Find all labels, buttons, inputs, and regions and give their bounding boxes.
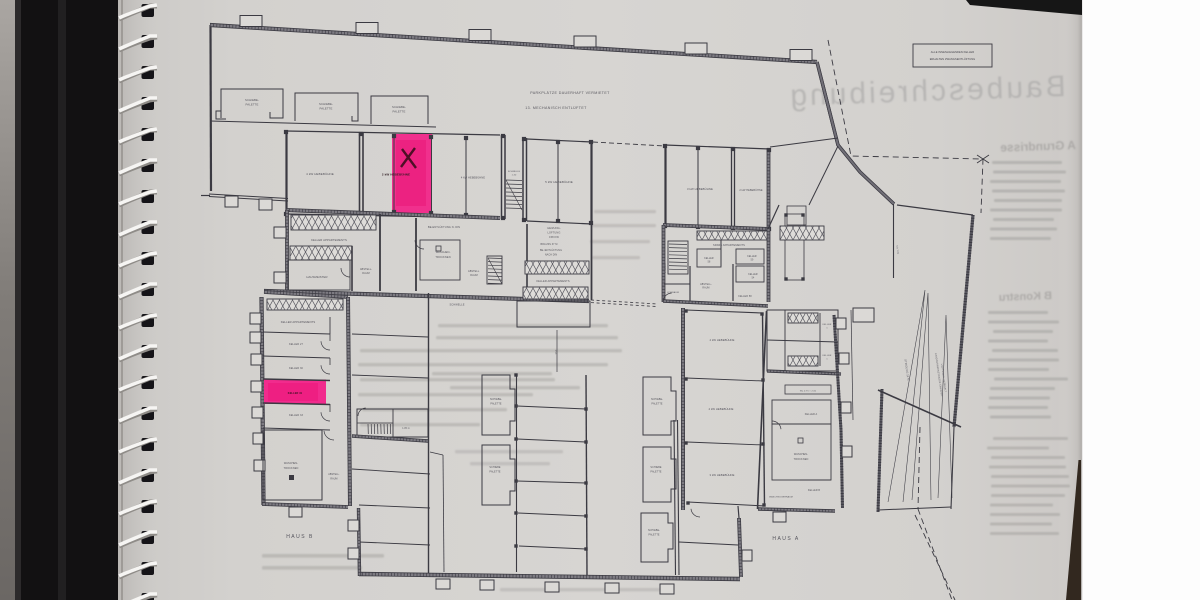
svg-text:1.30: 1.30	[512, 175, 517, 177]
svg-text:ABSTELL-: ABSTELL-	[360, 268, 372, 271]
svg-text:TROCKNEN: TROCKNEN	[435, 255, 450, 259]
svg-text:KELLER APPARTEMENTS: KELLER APPARTEMENTS	[311, 238, 347, 242]
svg-text:1.05×2.0: 1.05×2.0	[664, 263, 667, 273]
svg-text:ALLE INNENLIEGENDEN KELLER: ALLE INNENLIEGENDEN KELLER	[931, 50, 974, 54]
svg-text:WASCHEN-: WASCHEN-	[284, 462, 298, 465]
svg-text:SCHIEBE: SCHIEBE	[650, 466, 662, 469]
svg-text:3 kW HEBEBÜHNE: 3 kW HEBEBÜHNE	[710, 473, 735, 477]
svg-text:PALETTE: PALETTE	[393, 110, 406, 114]
svg-text:BE-/ENTLÜFTUNG: BE-/ENTLÜFTUNG	[540, 249, 562, 252]
svg-text:KELLER: KELLER	[704, 258, 714, 260]
svg-text:WASCHEN-: WASCHEN-	[794, 453, 808, 456]
svg-text:KELLER: KELLER	[748, 274, 758, 276]
svg-text:BRAUSS 37 M: BRAUSS 37 M	[541, 243, 558, 246]
svg-text:RAUM: RAUM	[702, 287, 709, 290]
svg-text:RAUM: RAUM	[362, 272, 369, 275]
svg-text:A Grundrisse: A Grundrisse	[1000, 138, 1076, 155]
svg-text:PALETTE: PALETTE	[648, 534, 659, 537]
svg-text:ABSTELL-: ABSTELL-	[700, 283, 712, 286]
svg-text:HAUS A: HAUS A	[772, 536, 799, 542]
svg-text:PALETTE: PALETTE	[650, 471, 661, 474]
svg-text:TROCKNEN: TROCKNEN	[284, 467, 299, 470]
svg-text:SCHWELLE: SCHWELLE	[449, 303, 464, 307]
svg-text:PARKPLÄTZE DAUERHAFT VERMIETET: PARKPLÄTZE DAUERHAFT VERMIETET	[530, 91, 610, 95]
svg-text:2 kW HEBEBÜHNE: 2 kW HEBEBÜHNE	[382, 172, 410, 177]
svg-text:SCHIEBE-: SCHIEBE-	[392, 105, 406, 109]
svg-text:KELLER 30: KELLER 30	[289, 367, 303, 370]
svg-text:SCHIEBE-: SCHIEBE-	[651, 398, 663, 401]
svg-text:LÜFTUNG: LÜFTUNG	[548, 231, 561, 235]
svg-text:SCHIEBE: SCHIEBE	[489, 466, 501, 469]
svg-text:WASCHKÜGERRAUM: WASCHKÜGERRAUM	[769, 496, 793, 499]
svg-text:4 kW HEBEBÜHNE: 4 kW HEBEBÜHNE	[461, 176, 485, 180]
svg-text:KELLER: KELLER	[747, 256, 757, 258]
svg-text:SCHIEBE-: SCHIEBE-	[245, 98, 259, 102]
svg-text:PALETTE: PALETTE	[489, 471, 500, 474]
svg-text:KELLER APPARTEMENTS: KELLER APPARTEMENTS	[536, 279, 570, 283]
svg-text:ABSTELL.: ABSTELL.	[468, 270, 480, 273]
svg-text:KELLER: KELLER	[823, 355, 832, 357]
svg-text:4 kW HEBEBÜHNE: 4 kW HEBEBÜHNE	[709, 407, 734, 411]
svg-text:SCHIEBE-: SCHIEBE-	[490, 398, 502, 401]
svg-text:BE-ENTLÜFTUNG N. DIN: BE-ENTLÜFTUNG N. DIN	[428, 225, 460, 229]
svg-text:KELLER 27: KELLER 27	[289, 343, 303, 346]
svg-text:SCHIEBE-: SCHIEBE-	[648, 529, 660, 532]
svg-text:PALETTE: PALETTE	[651, 403, 662, 406]
svg-text:RAUM: RAUM	[330, 478, 337, 481]
svg-text:B Konstru: B Konstru	[999, 290, 1053, 304]
svg-text:RAUM: RAUM	[470, 274, 477, 277]
svg-text:KELLER A: KELLER A	[805, 413, 818, 416]
svg-text:SPARE APPARTEMENTS: SPARE APPARTEMENTS	[713, 243, 745, 247]
svg-text:PALETTE: PALETTE	[490, 403, 501, 406]
svg-text:5 kW HEBEBÜHNE: 5 kW HEBEBÜHNE	[545, 180, 573, 184]
svg-text:3 kW HEBEBÜHNE: 3 kW HEBEBÜHNE	[687, 187, 713, 191]
svg-text:KELLER 58: KELLER 58	[738, 295, 752, 298]
svg-text:2 kW HEBEBÜHNE: 2 kW HEBEBÜHNE	[739, 189, 763, 192]
svg-text:158 KW: 158 KW	[549, 235, 559, 239]
svg-text:Wa 0.75 × 2.00: Wa 0.75 × 2.00	[800, 390, 817, 393]
svg-text:NACH DIN: NACH DIN	[545, 254, 558, 257]
svg-text:HAUS B: HAUS B	[286, 534, 314, 540]
svg-text:4 kW HEBEBÜHNE: 4 kW HEBEBÜHNE	[306, 172, 334, 176]
svg-text:ABSTELL.: ABSTELL.	[328, 473, 340, 476]
svg-text:HEIZUNG-: HEIZUNG-	[547, 226, 560, 230]
svg-text:ERHALTEN ZWANGSENTLÜFTUNG: ERHALTEN ZWANGSENTLÜFTUNG	[930, 57, 976, 61]
svg-text:4 kW HEBEBÜHNE: 4 kW HEBEBÜHNE	[710, 338, 735, 342]
svg-text:SCHIEBE-: SCHIEBE-	[319, 102, 333, 106]
svg-text:KELLER APPARTEMENTS: KELLER APPARTEMENTS	[281, 320, 316, 324]
svg-text:SCHNELLE: SCHNELLE	[508, 171, 521, 173]
svg-text:HAUSMEISTER: HAUSMEISTER	[306, 275, 327, 279]
svg-text:KELLER 31: KELLER 31	[288, 392, 303, 395]
svg-text:PALETTE: PALETTE	[320, 107, 333, 111]
svg-text:1.05 m: 1.05 m	[402, 428, 410, 430]
svg-text:KELLER 33: KELLER 33	[289, 414, 303, 417]
svg-text:KELLER B: KELLER B	[808, 489, 821, 492]
svg-text:1.50: 1.50	[554, 350, 556, 355]
svg-text:PALETTE: PALETTE	[246, 103, 259, 107]
svg-text:TROCKNEN: TROCKNEN	[794, 458, 809, 461]
svg-text:KELLER: KELLER	[823, 324, 832, 326]
svg-text:13. MECHANISCH ENTLÜFTET: 13. MECHANISCH ENTLÜFTET	[525, 106, 587, 110]
